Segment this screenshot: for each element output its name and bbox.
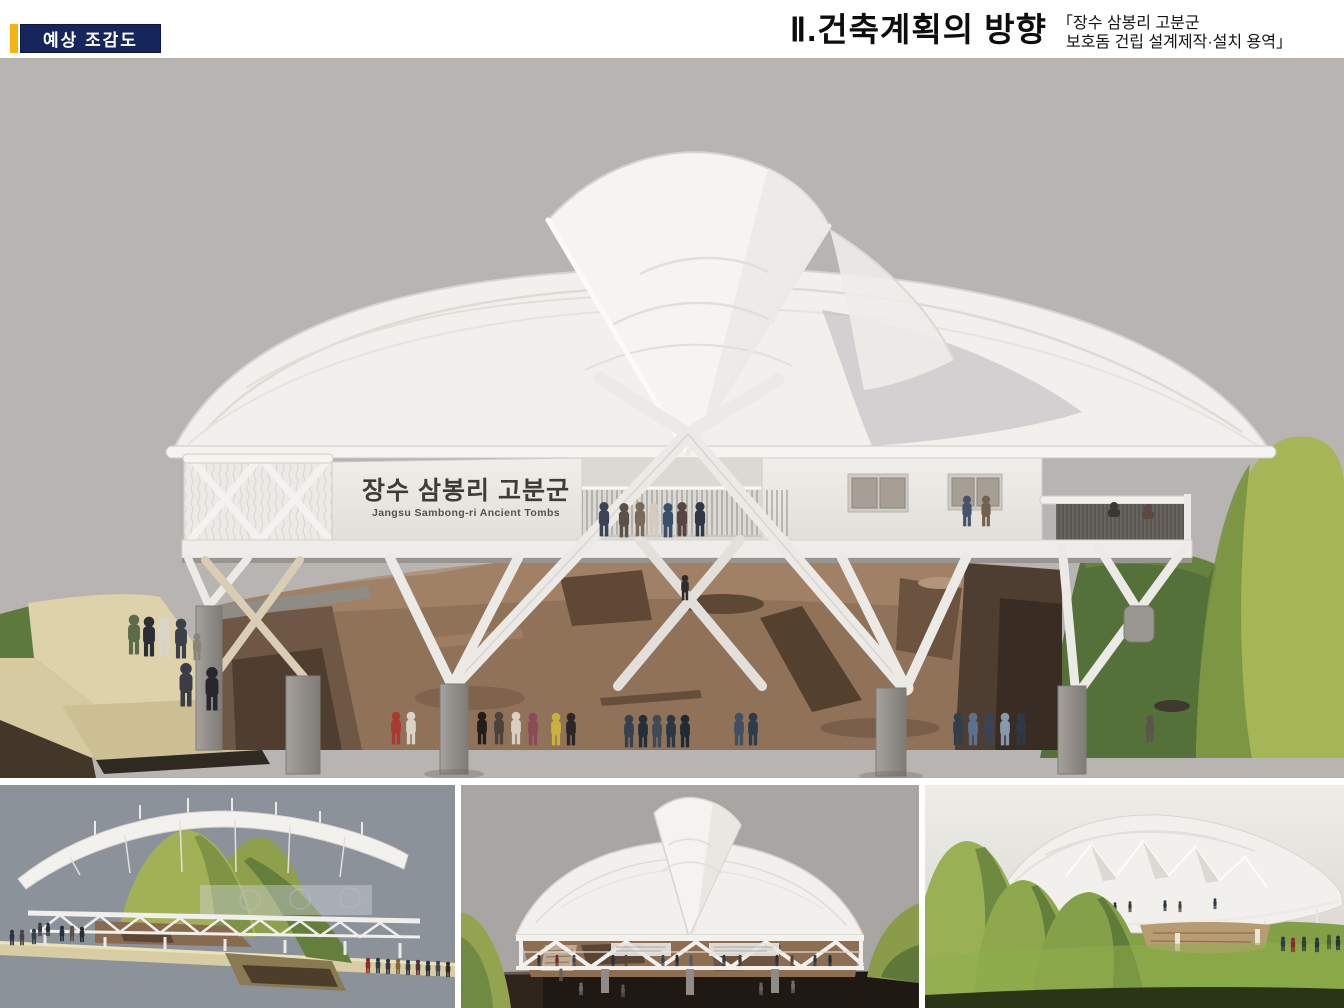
main-rendering-front-elevation: 장수 삼봉리 고분군 Jangsu Sambong-ri Ancient Tom… [0, 58, 1344, 778]
presentation-slide: 예상 조감도 Ⅱ.건축계획의 방향 「장수 삼봉리 고분군 보호돔 건립 설계제… [0, 0, 1344, 1008]
left-mesh-truss [183, 454, 333, 540]
building-sign-korean: 장수 삼봉리 고분군 [362, 477, 570, 505]
gold-accent-bar [10, 24, 18, 53]
badge-label: 예상 조감도 [20, 24, 161, 53]
thumbnail-front-view [461, 785, 919, 1008]
thumbnail-row [0, 785, 1344, 1008]
thumbnail-perspective-view [925, 785, 1344, 1008]
slide-title-block: Ⅱ.건축계획의 방향 「장수 삼봉리 고분군 보호돔 건립 설계제작·설치 용역… [790, 10, 1292, 52]
section-badge: 예상 조감도 [10, 24, 161, 53]
right-wall-windows [762, 458, 1042, 540]
subtitle-line2: 보호돔 건립 설계제작·설치 용역」 [1057, 33, 1292, 52]
deck-floor-band [182, 540, 1192, 558]
slide-subtitle: 「장수 삼봉리 고분군 보호돔 건립 설계제작·설치 용역」 [1057, 10, 1292, 52]
slide-header: 예상 조감도 Ⅱ.건축계획의 방향 「장수 삼봉리 고분군 보호돔 건립 설계제… [0, 0, 1344, 58]
dark-observation-railing [1040, 494, 1191, 546]
subtitle-line1: 「장수 삼봉리 고분군 [1057, 14, 1292, 33]
building-sign-english: Jangsu Sambong-ri Ancient Tombs [372, 507, 560, 519]
thumbnail-side-elevation [0, 785, 455, 1008]
deck-shadow-line [182, 558, 1192, 563]
elevated-deck: 장수 삼봉리 고분군 Jangsu Sambong-ri Ancient Tom… [182, 454, 1192, 563]
slide-title: Ⅱ.건축계획의 방향 [790, 10, 1047, 50]
